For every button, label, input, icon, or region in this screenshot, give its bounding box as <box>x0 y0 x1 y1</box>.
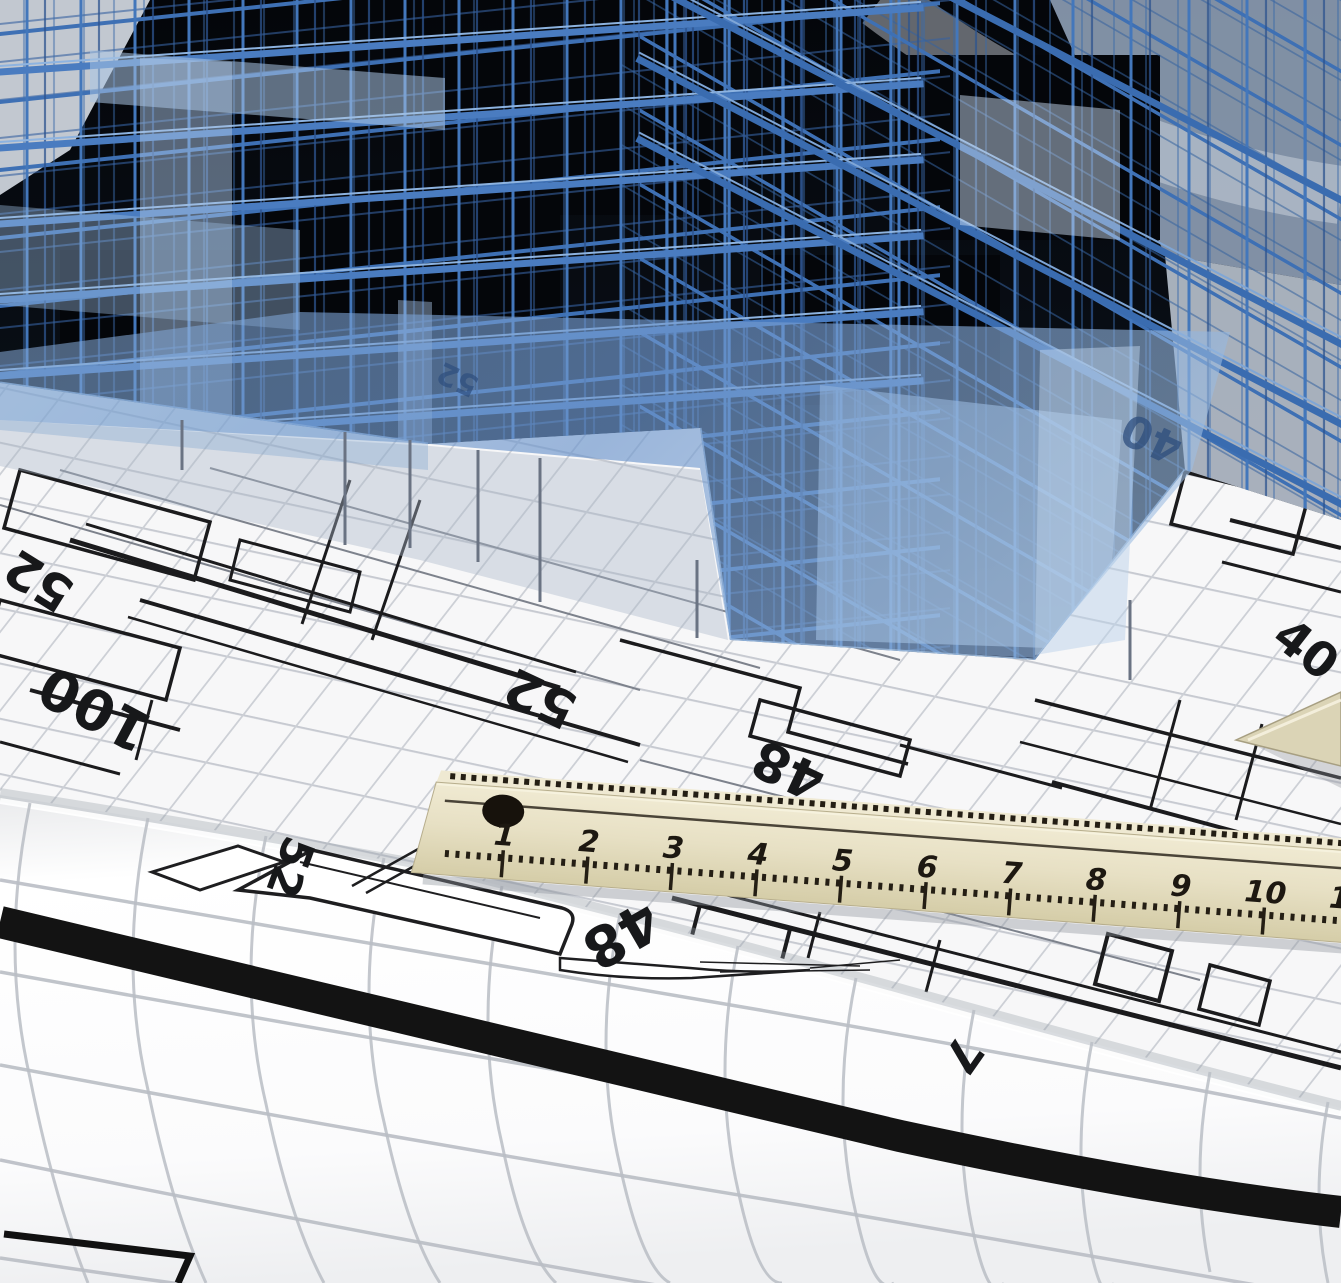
ruler-bevel-tick <box>1285 836 1290 842</box>
ruler-minor-tick <box>1037 894 1042 901</box>
ruler-number: 3 <box>662 830 685 866</box>
ruler-minor-tick <box>867 882 872 889</box>
ruler-number: 11 <box>1328 880 1341 918</box>
ruler-minor-tick <box>1047 895 1052 902</box>
ruler-minor-tick <box>762 874 767 881</box>
ruler-bevel-tick <box>735 795 740 801</box>
ruler-number: 6 <box>915 849 938 885</box>
ruler-bevel-tick <box>545 780 550 786</box>
ruler-minor-tick <box>1100 899 1105 906</box>
ruler-minor-tick <box>1142 902 1147 909</box>
ruler-minor-tick <box>571 859 576 866</box>
ruler-minor-tick <box>466 852 471 859</box>
ruler-bevel-tick <box>894 807 899 813</box>
ruler-number: 5 <box>831 843 854 879</box>
ruler-bevel-tick <box>450 773 455 779</box>
ruler-minor-tick <box>857 881 862 888</box>
ruler-bevel-tick <box>809 800 814 806</box>
ruler-bevel-tick <box>1158 826 1163 832</box>
ruler-bevel-tick <box>757 796 762 802</box>
ruler-minor-tick <box>1195 906 1200 913</box>
ruler-bevel-tick <box>1296 837 1301 843</box>
ruler-minor-tick <box>656 866 661 873</box>
ruler-bevel-tick <box>630 787 635 793</box>
ruler-minor-tick <box>772 875 777 882</box>
ruler-bevel-tick <box>461 774 466 780</box>
ruler-minor-tick <box>963 889 968 896</box>
ruler-bevel-tick <box>535 779 540 785</box>
ruler-minor-tick <box>1068 897 1073 904</box>
ruler-bevel-tick <box>767 797 772 803</box>
ruler-number: 10 <box>1243 874 1287 912</box>
ruler-bevel-tick <box>799 799 804 805</box>
ruler-minor-tick <box>899 884 904 891</box>
ruler-minor-tick <box>593 861 598 868</box>
ruler-bevel-tick <box>1063 819 1068 825</box>
ruler-bevel-tick <box>989 814 994 820</box>
ruler-bevel-tick <box>820 801 825 807</box>
ruler-major-tick <box>1262 908 1264 935</box>
ruler-bevel-tick <box>661 789 666 795</box>
ruler-bevel-tick <box>640 787 645 793</box>
ruler-bevel-tick <box>503 777 508 783</box>
ruler-minor-tick <box>1248 910 1253 917</box>
ruler-bevel-tick <box>936 810 941 816</box>
ruler-bevel-tick <box>672 790 677 796</box>
ruler-major-tick <box>755 869 757 896</box>
ruler-minor-tick <box>910 885 915 892</box>
ruler-minor-tick <box>455 851 460 858</box>
ruler-bevel-tick <box>1190 829 1195 835</box>
ruler-bevel-tick <box>1021 816 1026 822</box>
ruler-minor-tick <box>1153 903 1158 910</box>
ruler-minor-tick <box>825 879 830 886</box>
ruler-minor-tick <box>540 857 545 864</box>
ruler-bevel-tick <box>725 794 730 800</box>
ruler-minor-tick <box>1311 915 1316 922</box>
ruler-minor-tick <box>1290 914 1295 921</box>
ruler-bevel-tick <box>1264 834 1269 840</box>
ruler-bevel-tick <box>947 810 952 816</box>
ruler-minor-tick <box>984 890 989 897</box>
ruler-minor-tick <box>793 876 798 883</box>
ruler-minor-tick <box>635 864 640 871</box>
ruler-minor-tick <box>677 867 682 874</box>
ruler-number: 4 <box>745 837 769 874</box>
ruler-major-tick <box>670 863 672 890</box>
ruler-minor-tick <box>941 887 946 894</box>
ruler-bevel-tick <box>1253 834 1258 840</box>
ruler-bevel-tick <box>482 776 487 782</box>
ruler-bevel-tick <box>1074 820 1079 826</box>
ruler-minor-tick <box>1132 902 1137 909</box>
ruler-major-tick <box>1093 895 1095 922</box>
ruler-bevel-tick <box>704 792 709 798</box>
ruler-minor-tick <box>952 888 957 895</box>
ruler-bevel-tick <box>1222 831 1227 837</box>
ruler-minor-tick <box>529 856 534 863</box>
ruler-bevel-tick <box>1327 839 1332 845</box>
ruler-bevel-tick <box>1052 818 1057 824</box>
slab-bright-column <box>1035 346 1140 655</box>
ruler-bevel-tick <box>862 804 867 810</box>
ruler-minor-tick <box>561 859 566 866</box>
ruler-bevel-tick <box>778 798 783 804</box>
ruler-minor-tick <box>603 862 608 869</box>
ruler-major-tick <box>1178 901 1180 928</box>
ruler-minor-tick <box>1185 906 1190 913</box>
ruler-minor-tick <box>445 850 450 857</box>
ruler-number: 9 <box>1169 868 1192 904</box>
ruler-bevel-tick <box>1274 835 1279 841</box>
ruler-bevel-tick <box>873 805 878 811</box>
ruler-major-tick <box>501 850 503 877</box>
ruler-bevel-tick <box>957 811 962 817</box>
ruler-minor-tick <box>688 868 693 875</box>
ruler-major-tick <box>586 857 588 884</box>
blueprint-photo-scene: 52 100 52 48 40 <box>0 0 1341 1283</box>
ruler-minor-tick <box>1237 910 1242 917</box>
ruler-minor-tick <box>1216 908 1221 915</box>
ruler-bevel-tick <box>968 812 973 818</box>
ruler-bevel-tick <box>1243 833 1248 839</box>
ruler-minor-tick <box>1280 913 1285 920</box>
ruler-bevel-tick <box>883 806 888 812</box>
ruler-bevel-tick <box>831 802 836 808</box>
ruler-minor-tick <box>783 875 788 882</box>
ruler-bevel-tick <box>693 791 698 797</box>
ruler-minor-tick <box>1026 894 1031 901</box>
ruler-bevel-tick <box>1000 814 1005 820</box>
ruler-bevel-tick <box>1169 827 1174 833</box>
ruler-bevel-tick <box>746 795 751 801</box>
ruler-minor-tick <box>645 865 650 872</box>
ruler-bevel-tick <box>598 784 603 790</box>
ruler-bevel-tick <box>556 781 561 787</box>
ruler-minor-tick <box>889 883 894 890</box>
ruler-minor-tick <box>994 891 999 898</box>
ruler-minor-tick <box>1206 907 1211 914</box>
ruler-minor-tick <box>624 863 629 870</box>
ruler-bevel-tick <box>714 793 719 799</box>
ruler-bevel-tick <box>1137 825 1142 831</box>
ruler-minor-tick <box>709 870 714 877</box>
ruler-minor-tick <box>1121 901 1126 908</box>
ruler-minor-tick <box>1079 898 1084 905</box>
ruler-bevel-tick <box>651 788 656 794</box>
ruler-bevel-tick <box>619 786 624 792</box>
ruler-minor-tick <box>931 887 936 894</box>
ruler-bevel-tick <box>841 803 846 809</box>
ruler-minor-tick <box>519 856 524 863</box>
ruler-minor-tick <box>804 877 809 884</box>
ruler-minor-tick <box>1301 914 1306 921</box>
ruler-bevel-tick <box>1116 823 1121 829</box>
ruler-minor-tick <box>508 855 513 862</box>
ruler-minor-tick <box>1058 896 1063 903</box>
ruler-minor-tick <box>1227 909 1232 916</box>
ruler-bevel-tick <box>1148 826 1153 832</box>
ruler-minor-tick <box>1333 917 1338 924</box>
ruler-number: 7 <box>1000 856 1024 892</box>
ruler-bevel-tick <box>1179 828 1184 834</box>
ruler-minor-tick <box>1322 916 1327 923</box>
ruler-number: 8 <box>1085 862 1108 898</box>
ruler-bevel-tick <box>788 799 793 805</box>
ruler-bevel-tick <box>1306 838 1311 844</box>
ruler-minor-tick <box>614 863 619 870</box>
ruler-bevel-tick <box>566 782 571 788</box>
ruler-bevel-tick <box>609 785 614 791</box>
ruler-minor-tick <box>1269 912 1274 919</box>
ruler-bevel-tick <box>905 807 910 813</box>
ruler-minor-tick <box>1015 893 1020 900</box>
ruler-bevel-tick <box>577 783 582 789</box>
ruler-bevel-tick <box>1200 830 1205 836</box>
ruler-bevel-tick <box>1105 822 1110 828</box>
ruler-number: 1 <box>493 818 516 854</box>
ruler-minor-tick <box>846 880 851 887</box>
ruler-bevel-tick <box>1042 818 1047 824</box>
ruler-minor-tick <box>550 858 555 865</box>
ruler-minor-tick <box>973 890 978 897</box>
ruler-minor-tick <box>1163 904 1168 911</box>
ruler-bevel-tick <box>978 813 983 819</box>
ruler-major-tick <box>1009 888 1011 915</box>
ruler-bevel-tick <box>1317 838 1322 844</box>
ruler-bevel-tick <box>1010 815 1015 821</box>
ruler-minor-tick <box>815 878 820 885</box>
ruler-bevel-tick <box>852 803 857 809</box>
ruler-minor-tick <box>487 853 492 860</box>
ruler-bevel-tick <box>524 779 529 785</box>
ruler-bevel-tick <box>1095 822 1100 828</box>
ruler-bevel-tick <box>1031 817 1036 823</box>
ruler-bevel-tick <box>1126 824 1131 830</box>
ruler-minor-tick <box>1111 900 1116 907</box>
ruler-minor-tick <box>476 852 481 859</box>
ruler-major-tick <box>924 882 926 909</box>
ruler-minor-tick <box>719 871 724 878</box>
ruler-minor-tick <box>698 869 703 876</box>
ruler-bevel-tick <box>492 776 497 782</box>
ruler-bevel-tick <box>471 775 476 781</box>
ruler-bevel-tick <box>1232 832 1237 838</box>
ruler-minor-tick <box>741 872 746 879</box>
ruler-major-tick <box>840 876 842 903</box>
ruler-minor-tick <box>730 871 735 878</box>
scene-canvas: 52 100 52 48 40 <box>0 0 1341 1283</box>
ruler-bevel-tick <box>1084 821 1089 827</box>
ruler-bevel-tick <box>915 808 920 814</box>
glass-panel <box>960 95 1120 240</box>
ruler-bevel-tick <box>926 809 931 815</box>
ruler-number: 2 <box>577 824 600 860</box>
ruler-bevel-tick <box>683 791 688 797</box>
ruler-bevel-tick <box>513 778 518 784</box>
ruler-bevel-tick <box>1211 830 1216 836</box>
ruler-minor-tick <box>878 883 883 890</box>
ruler-bevel-tick <box>587 783 592 789</box>
